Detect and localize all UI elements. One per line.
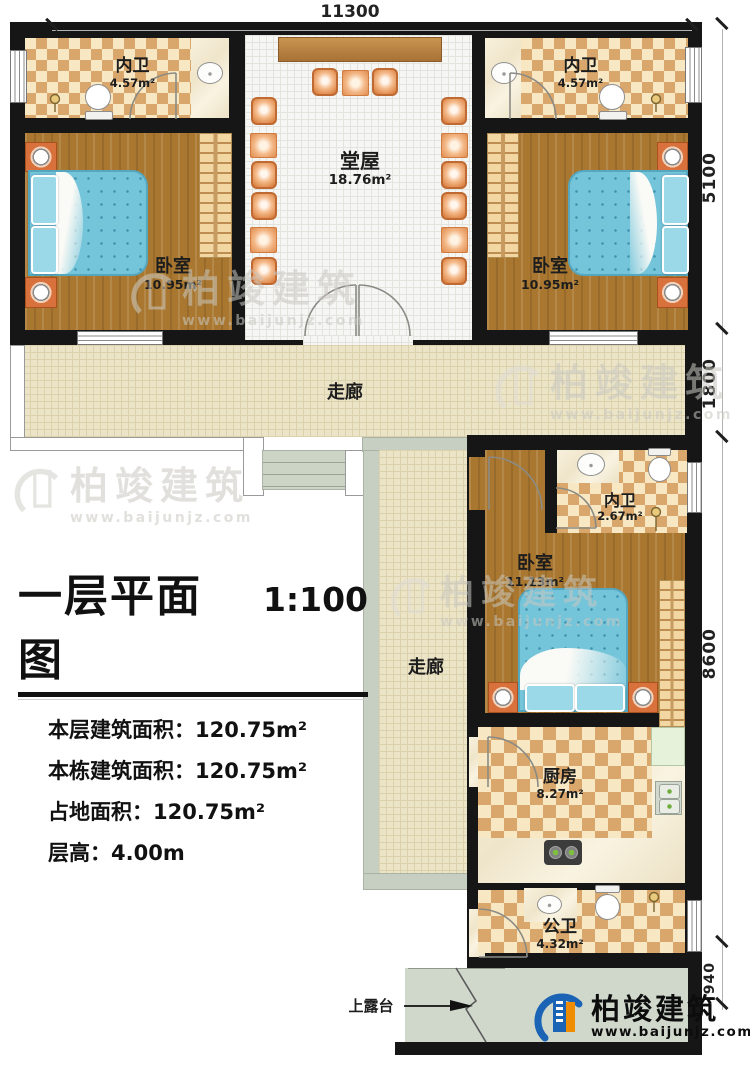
chair-icon [441, 97, 467, 125]
stool-icon [441, 227, 468, 253]
corridor-left-edge [10, 345, 25, 439]
brand-watermark-icon [12, 463, 64, 519]
sink-icon [491, 62, 517, 84]
window-bath-top-left [10, 50, 27, 103]
title-rule [18, 692, 368, 697]
entry-pillar-left [243, 437, 264, 496]
entry-pillar-right [345, 450, 364, 496]
nightstand-icon [488, 682, 518, 713]
bath-middle-left-wall [545, 448, 557, 490]
dimension-right-main: 8600 [700, 628, 720, 679]
window-bath-bottom [687, 900, 702, 952]
toilet-icon [595, 885, 622, 922]
chair-icon [441, 161, 467, 189]
nightstand-icon [657, 277, 688, 308]
hall-door-threshold [303, 335, 413, 345]
sideboard-icon [278, 37, 442, 62]
watermark: 柏竣建筑www.baijunjz.com [12, 455, 253, 526]
window-bath-middle [687, 462, 702, 513]
room-label-bath-bottom: 公卫 4.32m² [505, 918, 615, 951]
chair-icon [251, 257, 277, 285]
bedroom-middle-door-opening [469, 457, 485, 510]
room-label-bedroom-right: 卧室 10.95m² [505, 257, 595, 292]
dimension-tick [715, 17, 728, 30]
terrace-label: 上露台 [336, 998, 406, 1015]
fridge-icon [651, 727, 685, 766]
room-label-bedroom-left: 卧室 10.95m² [128, 257, 218, 292]
nightstand-icon [25, 142, 57, 172]
sink-icon [197, 62, 223, 84]
entry-steps [262, 450, 347, 490]
corridor-bottom-edge [10, 437, 245, 451]
plan-title: 一层平面图 [18, 560, 247, 688]
dimension-top: 11300 [250, 2, 450, 22]
sink-icon [577, 453, 605, 476]
kitchen-sink-icon [655, 781, 682, 815]
plan-scale: 1:100 [263, 580, 368, 619]
pillow-icon [662, 226, 689, 274]
stat-line: 层高：4.00m [48, 837, 368, 867]
wardrobe-icon [199, 133, 232, 258]
pillow-icon [575, 684, 625, 712]
sink-icon [537, 895, 562, 914]
title-rule-thin [18, 699, 368, 700]
room-label-kitchen: 厨房 8.27m² [505, 768, 615, 801]
dimension-line-top [52, 30, 692, 31]
room-label-corridor-horizontal: 走廊 [295, 383, 395, 404]
stool-icon [250, 133, 277, 158]
dimension-right-top: 5100 [700, 152, 720, 203]
stat-line: 本层建筑面积：120.75m² [48, 714, 368, 744]
chair-icon [441, 257, 467, 285]
wardrobe-icon [487, 133, 519, 258]
brand-name: 柏竣建筑 [591, 995, 750, 1024]
nightstand-icon [628, 682, 658, 713]
brand-logo: 柏竣建筑 www.baijunjz.com [533, 988, 750, 1046]
pillow-icon [31, 226, 58, 274]
nightstand-icon [657, 142, 688, 172]
bedroom-middle-entry-floor [485, 450, 545, 533]
dimension-right-mid: 1800 [700, 358, 720, 409]
chair-icon [372, 68, 398, 96]
floor-plan-canvas: 内卫 4.57m² 内卫 4.57m² 堂屋 18.76m² 卧室 10.95m… [0, 0, 750, 1066]
chair-icon [251, 97, 277, 125]
brand-logo-icon [533, 988, 585, 1046]
room-label-bedroom-middle: 卧室 11.13m² [480, 554, 590, 589]
stool-icon [441, 133, 468, 158]
nightstand-icon [25, 277, 57, 308]
room-label-bath-middle: 内卫 2.67m² [575, 492, 665, 524]
room-label-bath-top-left: 内卫 4.57m² [85, 57, 180, 90]
chair-icon [441, 192, 467, 220]
brand-url: www.baijunjz.com [591, 1024, 750, 1040]
room-label-corridor-vertical: 走廊 [376, 658, 476, 679]
stool-icon [342, 70, 369, 96]
pillow-icon [525, 684, 575, 712]
terrace-stairs [408, 968, 505, 1044]
toilet-icon [648, 448, 673, 484]
window-bedroom-right [549, 331, 638, 345]
title-block: 一层平面图 1:100 本层建筑面积：120.75m² 本栋建筑面积：120.7… [18, 560, 368, 878]
room-label-bath-top-right: 内卫 4.57m² [533, 57, 628, 90]
chair-icon [312, 68, 338, 96]
stat-line: 占地面积：120.75m² [48, 796, 368, 826]
stat-line: 本栋建筑面积：120.75m² [48, 755, 368, 785]
pillow-icon [662, 175, 689, 225]
stove-icon [544, 840, 582, 865]
dimension-line-right [722, 29, 723, 1010]
window-bath-top-right [685, 47, 702, 103]
chair-icon [251, 161, 277, 189]
pillow-icon [31, 175, 58, 225]
window-bedroom-left [77, 331, 163, 345]
stool-icon [250, 227, 277, 253]
corridor-vertical-bottom-edge [363, 873, 474, 890]
room-label-hall: 堂屋 18.76m² [300, 150, 420, 189]
wardrobe-icon [659, 580, 685, 727]
chair-icon [251, 192, 277, 220]
